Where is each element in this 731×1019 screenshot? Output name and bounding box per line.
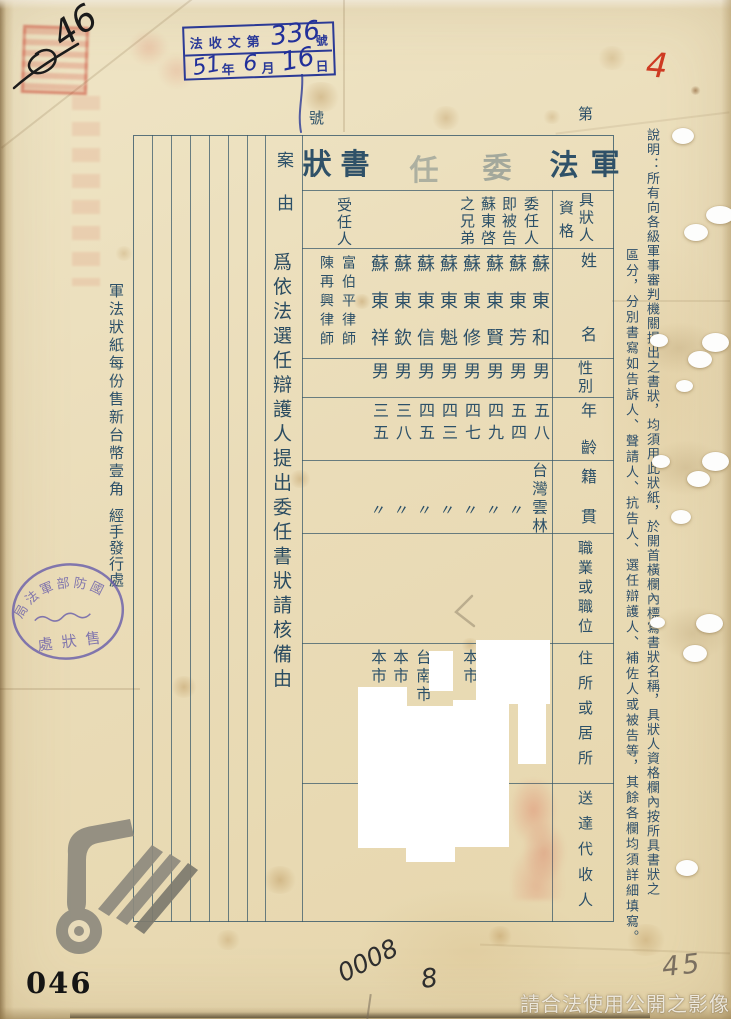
person-origin: 台灣雲林 xyxy=(528,462,550,536)
grid-hline xyxy=(302,397,614,398)
person-name: 蘇東芳 xyxy=(503,254,529,365)
grid-vline xyxy=(152,135,153,922)
case-text: 爲依法選任辯護人提出委任書狀請核備由 xyxy=(268,252,295,693)
receipt-month: 6 xyxy=(243,51,258,76)
grid-vline xyxy=(228,135,229,922)
person-age: 四三 xyxy=(436,402,460,446)
receipt-day-label: 日 xyxy=(315,56,329,75)
appointee-name: 陳再興律師 xyxy=(316,255,336,350)
document-scan: 第 號 軍 法 委 任 書 狀 案由 爲依法選任辯護人提出委任書狀請核備由 具狀… xyxy=(0,0,731,1019)
grid-hline xyxy=(302,190,614,191)
person-origin-ditto: 〃 xyxy=(367,501,390,519)
form-title-char: 委 xyxy=(481,145,513,187)
form-title-char: 任 xyxy=(408,147,440,189)
grid-hline xyxy=(302,248,614,249)
grid-hline xyxy=(302,460,614,461)
pencil-mark xyxy=(450,594,478,630)
receipt-day: 16 xyxy=(279,42,318,78)
header-qualification: 具狀人 xyxy=(576,192,597,245)
red-seal-remnant xyxy=(72,96,100,286)
receipt-suffix: 號 xyxy=(315,32,328,49)
person-age: 四五 xyxy=(413,402,437,446)
grid-vline xyxy=(209,135,210,922)
form-number-prefix: 第 xyxy=(575,106,596,121)
case-label: 案由 xyxy=(271,151,296,237)
red-page-number: 4 xyxy=(645,45,669,86)
punch-hole xyxy=(688,351,712,368)
person-origin-ditto: 〃 xyxy=(482,501,505,519)
form-title-char: 狀 xyxy=(301,141,333,183)
punch-hole xyxy=(696,614,723,633)
punch-hole xyxy=(671,510,691,524)
redaction-block xyxy=(453,700,509,847)
form-title-char: 軍 xyxy=(589,141,621,183)
person-name: 蘇東和 xyxy=(526,254,552,365)
person-age: 三五 xyxy=(367,402,391,446)
header-occupation: 職業或職位 xyxy=(575,540,596,638)
form-title-char: 書 xyxy=(339,141,371,183)
punch-hole xyxy=(684,224,708,241)
archive-logo-watermark xyxy=(46,810,198,960)
person-name: 蘇東修 xyxy=(457,254,483,365)
appointor-role: 之兄弟 xyxy=(457,196,478,247)
instructions-column-1: 說明：所有向各級軍事審判機關提出之書狀，均須用此狀紙，於開首橫欄內標寫書狀名稱，… xyxy=(642,128,661,897)
grid-vline xyxy=(171,135,172,922)
grid-vline xyxy=(247,135,248,922)
person-origin-ditto: 〃 xyxy=(505,501,528,519)
receipt-year: 51 xyxy=(191,52,223,81)
ink-scribble xyxy=(6,26,86,96)
redaction-block xyxy=(476,640,550,704)
appointee-name: 富伯平律師 xyxy=(338,255,358,350)
person-origin-ditto: 〃 xyxy=(436,501,459,519)
oval-office-stamp: 局法軍部防國 處狀售 xyxy=(0,548,144,675)
punch-hole xyxy=(706,206,731,224)
case-column-border xyxy=(302,135,303,922)
punch-hole xyxy=(650,617,665,628)
grid-hline xyxy=(302,643,614,644)
grid-vline xyxy=(190,135,191,922)
case-column-border xyxy=(265,135,266,922)
appointor-role: 蘇東啓 xyxy=(478,196,499,247)
red-stamp-remnant xyxy=(512,780,566,900)
punch-hole xyxy=(650,334,668,347)
person-name: 蘇東祥 xyxy=(365,254,391,365)
person-sex: 男 xyxy=(527,362,552,379)
punch-hole xyxy=(676,860,698,876)
punch-hole xyxy=(672,128,694,144)
person-origin-ditto: 〃 xyxy=(390,501,413,519)
punch-hole xyxy=(702,333,729,352)
price-note: 軍法狀紙每份售新台幣壹角 xyxy=(106,283,127,499)
person-sex: 男 xyxy=(412,362,437,379)
person-sex: 男 xyxy=(458,362,483,379)
person-sex: 男 xyxy=(481,362,506,379)
person-sex: 男 xyxy=(435,362,460,379)
redaction-block xyxy=(358,687,407,848)
header-age: 年齡 xyxy=(575,402,599,476)
person-name: 蘇東信 xyxy=(411,254,437,365)
person-age: 三八 xyxy=(390,402,414,446)
page-number-printed: 046 xyxy=(26,966,93,1000)
form-number-suffix: 號 xyxy=(306,110,327,125)
person-age: 五八 xyxy=(528,402,552,446)
redaction-block xyxy=(429,651,453,691)
redaction-block xyxy=(406,706,455,862)
person-sex: 男 xyxy=(366,362,391,379)
person-age: 四九 xyxy=(482,402,506,446)
handwritten-number-bottom-right: 45 xyxy=(660,948,703,983)
person-age: 五四 xyxy=(505,402,529,446)
appointee-role: 受任人 xyxy=(334,197,355,248)
person-age: 四七 xyxy=(459,402,483,446)
person-name: 蘇東賢 xyxy=(480,254,506,365)
receipt-stamp-box: 法收文第 336 號 51 年 6 月 16 日 xyxy=(182,21,336,80)
oval-stamp-arc-text: 局法軍部防國 xyxy=(8,571,111,623)
person-name: 蘇東欽 xyxy=(388,254,414,365)
ink-stroke xyxy=(294,74,308,134)
receipt-prefix: 法收文第 xyxy=(189,31,266,53)
form-title-char: 法 xyxy=(548,142,580,184)
svg-text:局法軍部防國: 局法軍部防國 xyxy=(8,571,111,623)
person-name: 蘇東魁 xyxy=(434,254,460,365)
receipt-year-label: 年 xyxy=(221,59,235,78)
person-sex: 男 xyxy=(504,362,529,379)
punch-hole xyxy=(683,645,707,662)
appointor-role: 即被告 xyxy=(499,196,520,247)
header-sex: 性別 xyxy=(575,360,596,396)
person-sex: 男 xyxy=(389,362,414,379)
punch-hole xyxy=(687,471,710,487)
redaction-block xyxy=(518,702,546,764)
header-qualification2: 資格 xyxy=(556,200,577,246)
instructions-column-2: 區分，分別書寫如告訴人、聲請人、抗告人、選任辯護人、補佐人或被告等，其餘各欄均須… xyxy=(621,248,640,946)
header-origin: 籍貫 xyxy=(575,468,599,548)
person-residence: 本市 xyxy=(367,649,389,686)
punch-hole xyxy=(702,452,729,471)
header-agent: 送達代收人 xyxy=(575,790,596,918)
person-origin-ditto: 〃 xyxy=(413,501,436,519)
grid-hline xyxy=(302,533,614,534)
receipt-month-label: 月 xyxy=(261,57,275,76)
person-residence: 本市 xyxy=(389,649,411,686)
person-origin-ditto: 〃 xyxy=(459,501,482,519)
appointor-role: 委任人 xyxy=(521,196,542,247)
header-residence: 住所或居所 xyxy=(575,650,596,775)
punch-hole xyxy=(652,455,670,468)
punch-hole xyxy=(676,380,693,392)
usage-watermark-text: 請合法使用公開之影像 xyxy=(520,988,730,1017)
